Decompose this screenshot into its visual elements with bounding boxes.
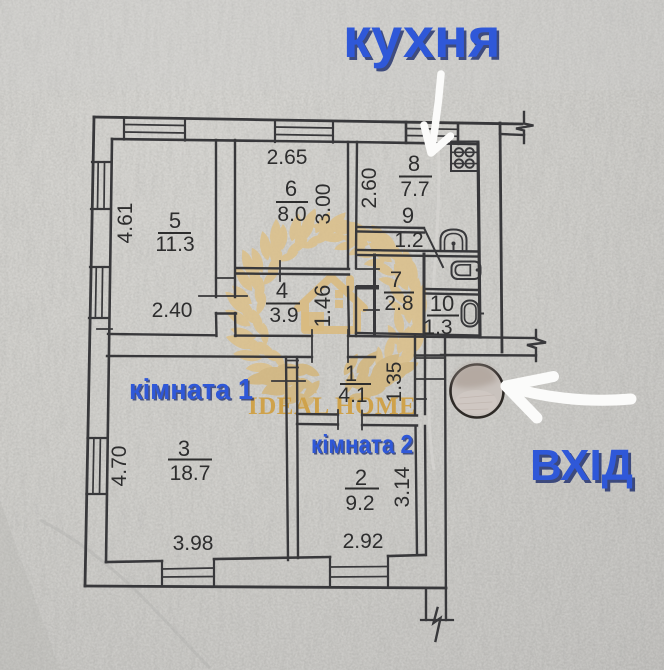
svg-text:1: 1 (345, 361, 357, 386)
svg-text:2.92: 2.92 (343, 530, 384, 553)
svg-text:3.14: 3.14 (391, 466, 414, 507)
svg-text:9: 9 (402, 203, 414, 228)
svg-text:кімната 2: кімната 2 (311, 429, 413, 459)
svg-text:кімната 1: кімната 1 (129, 374, 253, 406)
svg-text:4: 4 (276, 278, 288, 303)
svg-text:2.60: 2.60 (358, 168, 381, 209)
svg-text:10: 10 (430, 291, 454, 316)
svg-text:3.98: 3.98 (173, 532, 214, 555)
svg-text:4.1: 4.1 (338, 384, 367, 407)
svg-text:2.8: 2.8 (384, 292, 413, 315)
svg-text:8.0: 8.0 (277, 203, 306, 226)
svg-text:2.40: 2.40 (152, 299, 193, 322)
svg-text:ВХІД: ВХІД (530, 441, 633, 490)
svg-text:1.3: 1.3 (423, 316, 452, 339)
svg-text:3.00: 3.00 (312, 184, 335, 225)
svg-text:1.2: 1.2 (394, 229, 423, 252)
svg-text:6: 6 (285, 176, 297, 201)
svg-text:3.9: 3.9 (269, 304, 298, 327)
svg-text:5: 5 (169, 208, 181, 233)
svg-text:кухня: кухня (343, 6, 501, 69)
svg-text:2.65: 2.65 (267, 146, 308, 169)
svg-text:8: 8 (408, 151, 420, 176)
svg-text:7: 7 (390, 267, 402, 292)
svg-text:3: 3 (178, 436, 190, 461)
svg-text:9.2: 9.2 (345, 492, 374, 515)
svg-text:4.70: 4.70 (108, 446, 131, 487)
svg-text:4.61: 4.61 (114, 203, 137, 244)
svg-text:1.35: 1.35 (383, 362, 406, 403)
svg-text:2: 2 (355, 465, 367, 490)
svg-text:1.46: 1.46 (310, 285, 335, 328)
svg-text:18.7: 18.7 (170, 462, 211, 485)
svg-text:11.3: 11.3 (155, 233, 194, 256)
svg-text:7.7: 7.7 (400, 178, 429, 201)
